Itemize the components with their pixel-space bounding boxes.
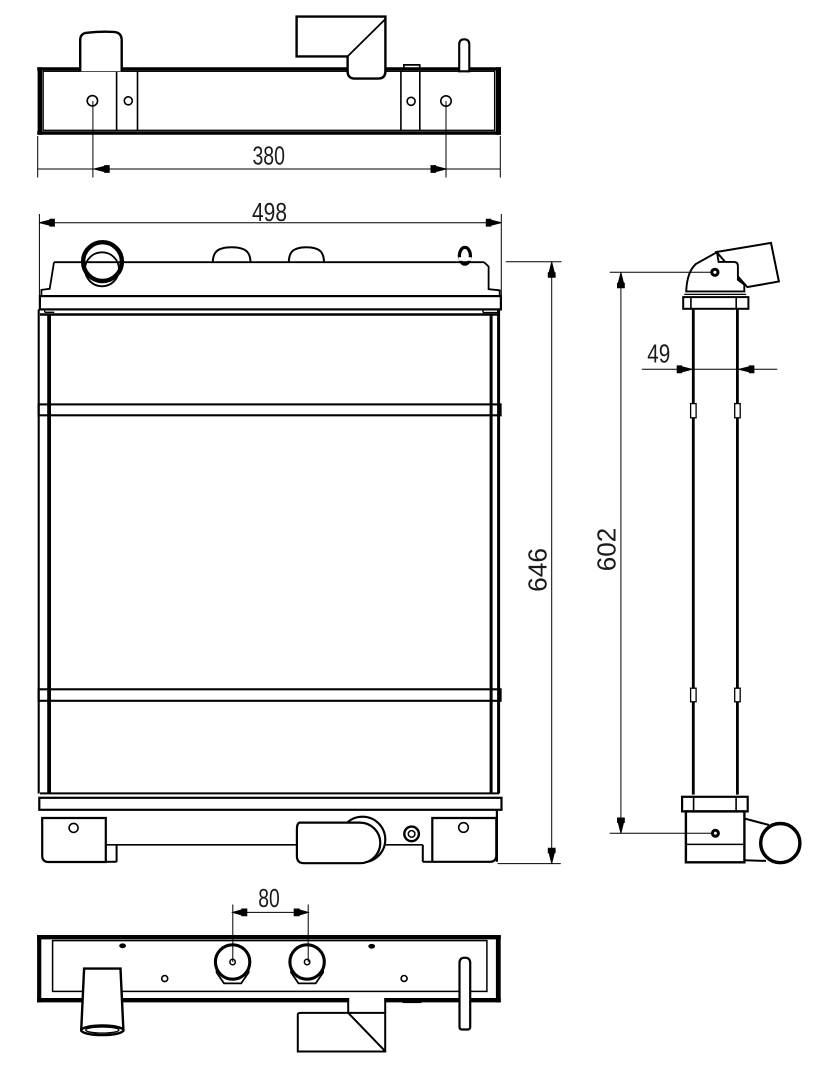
svg-text:80: 80 bbox=[258, 883, 280, 913]
svg-text:602: 602 bbox=[592, 528, 622, 572]
svg-text:646: 646 bbox=[523, 548, 553, 592]
svg-text:498: 498 bbox=[252, 197, 287, 227]
svg-text:380: 380 bbox=[252, 141, 285, 171]
svg-text:49: 49 bbox=[647, 339, 670, 369]
